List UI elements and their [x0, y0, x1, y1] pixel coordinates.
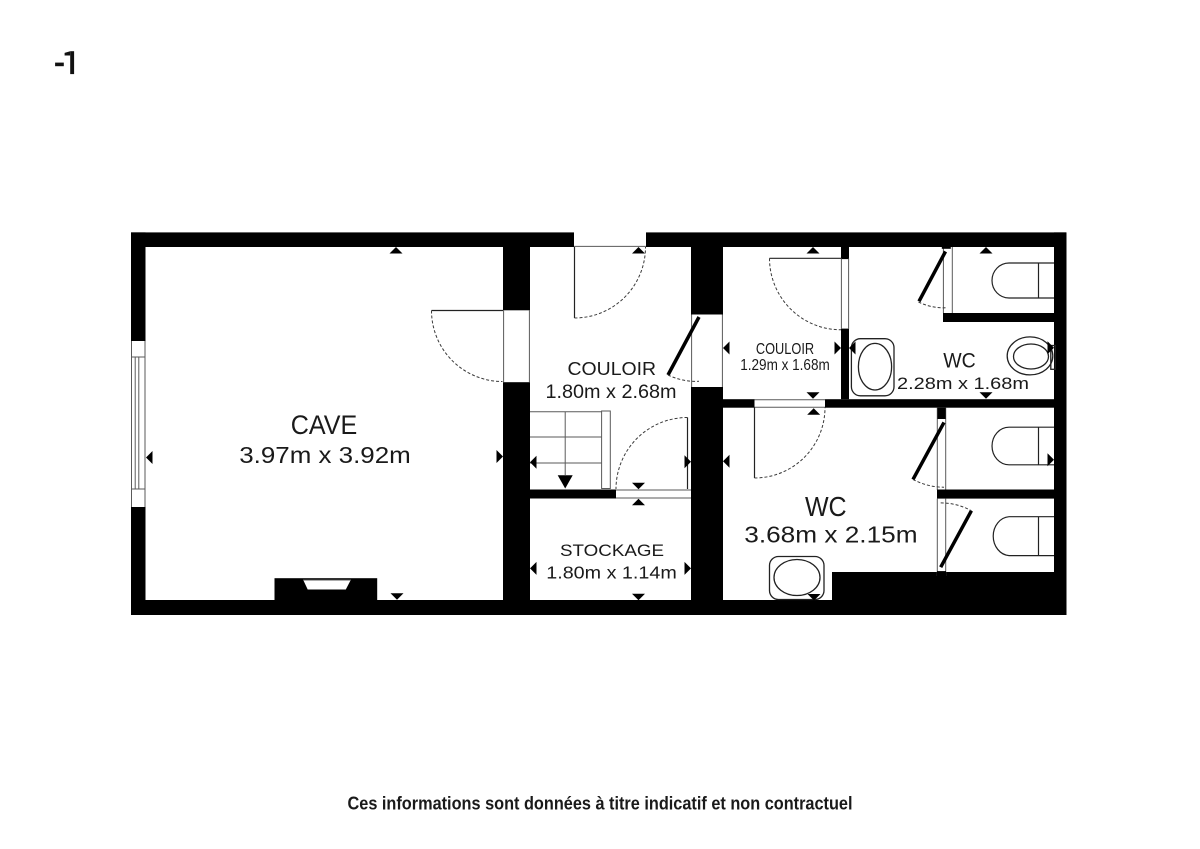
svg-text:3.68m x 2.15m: 3.68m x 2.15m	[744, 522, 917, 548]
svg-text:COULOIR: COULOIR	[756, 341, 814, 358]
svg-text:1.80m x 2.68m: 1.80m x 2.68m	[546, 381, 677, 403]
svg-text:Ces informations sont données: Ces informations sont données à titre in…	[348, 794, 853, 814]
svg-text:1.29m x 1.68m: 1.29m x 1.68m	[740, 357, 830, 374]
svg-text:3.97m x 3.92m: 3.97m x 3.92m	[239, 442, 411, 468]
svg-text:WC: WC	[805, 491, 847, 522]
svg-text:WC: WC	[943, 349, 976, 372]
svg-text:STOCKAGE: STOCKAGE	[560, 542, 664, 560]
svg-text:COULOIR: COULOIR	[568, 358, 657, 379]
svg-text:1.80m x 1.14m: 1.80m x 1.14m	[546, 563, 677, 583]
svg-text:CAVE: CAVE	[291, 410, 358, 440]
svg-text:2.28m x 1.68m: 2.28m x 1.68m	[897, 374, 1029, 393]
